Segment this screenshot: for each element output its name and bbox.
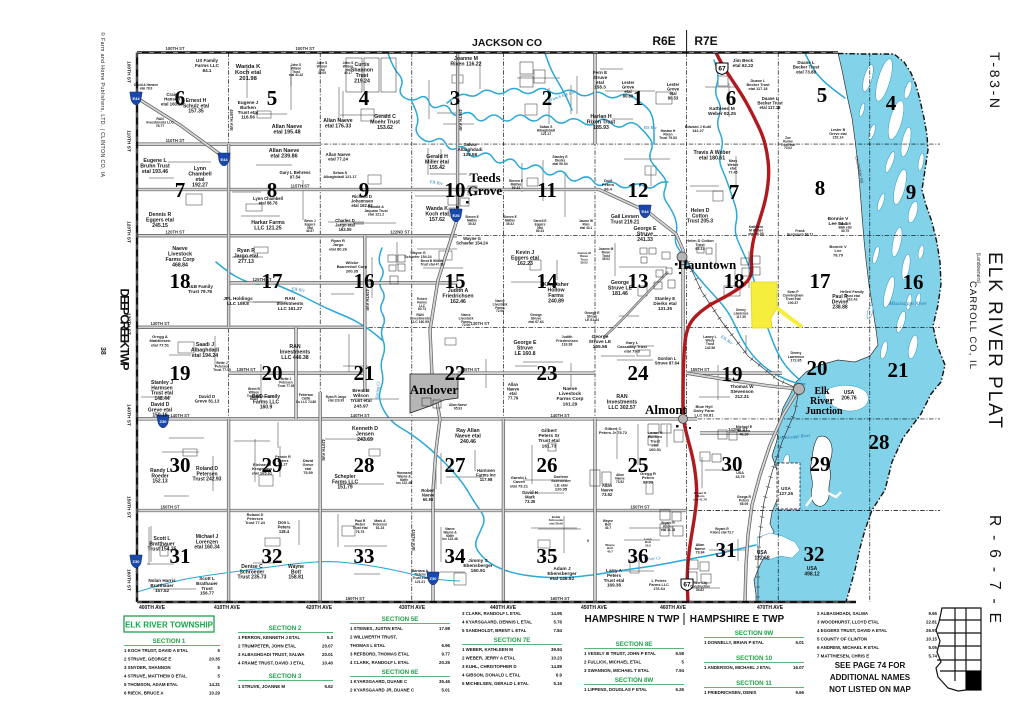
svg-text:130TH ST: 130TH ST bbox=[150, 321, 170, 326]
svg-text:9.77: 9.77 bbox=[441, 652, 450, 657]
svg-text:Z30: Z30 bbox=[430, 576, 438, 581]
svg-text:5.05: 5.05 bbox=[928, 645, 937, 650]
svg-text:22.81: 22.81 bbox=[926, 620, 938, 625]
svg-text:Brent B WilsonTrust etal 47.36: Brent B WilsonTrust etal 47.36 bbox=[420, 259, 443, 266]
svg-text:140TH ST: 140TH ST bbox=[550, 413, 570, 418]
svg-text:HAMPSHIRE E TWP: HAMPSHIRE E TWP bbox=[690, 614, 785, 625]
svg-text:R7E: R7E bbox=[694, 34, 717, 48]
svg-text:2: 2 bbox=[542, 86, 553, 110]
svg-text:420TH AVE: 420TH AVE bbox=[321, 439, 326, 461]
svg-text:SECTION 9W: SECTION 9W bbox=[735, 630, 774, 637]
svg-text:160TH ST: 160TH ST bbox=[126, 569, 132, 591]
svg-text:Randy LRoeder152.13: Randy LRoeder152.13 bbox=[150, 468, 170, 485]
svg-text:23: 23 bbox=[537, 361, 558, 385]
svg-text:450TH AVE: 450TH AVE bbox=[581, 605, 608, 611]
svg-text:4 CLARK, RANDOLF L ETAL: 4 CLARK, RANDOLF L ETAL bbox=[350, 660, 409, 665]
svg-text:125TH ST: 125TH ST bbox=[252, 277, 272, 282]
svg-text:36: 36 bbox=[628, 544, 649, 568]
svg-text:E44: E44 bbox=[220, 157, 228, 162]
svg-text:27: 27 bbox=[445, 453, 466, 477]
svg-text:410TH AVE: 410TH AVE bbox=[214, 605, 241, 611]
svg-text:5 MICHELSEN, GERALD L ETAL: 5 MICHELSEN, GERALD L ETAL bbox=[462, 681, 529, 686]
svg-text:5.01: 5.01 bbox=[441, 688, 450, 693]
svg-text:A&B FamilyTrust 79.78: A&B FamilyTrust 79.78 bbox=[187, 284, 213, 294]
svg-text:160TH ST: 160TH ST bbox=[550, 596, 570, 601]
svg-text:7.94: 7.94 bbox=[675, 668, 684, 673]
svg-text:140TH ST: 140TH ST bbox=[170, 413, 190, 418]
svg-text:4: 4 bbox=[359, 86, 370, 110]
svg-text:3 CLARK, RANDOLF L ETAL: 3 CLARK, RANDOLF L ETAL bbox=[462, 611, 521, 616]
svg-text:1 KYARSGAARD, DUANE C: 1 KYARSGAARD, DUANE C bbox=[350, 679, 408, 684]
svg-text:JPL HoldingsLLC 159.8: JPL HoldingsLLC 159.8 bbox=[223, 296, 253, 306]
svg-text:32: 32 bbox=[804, 542, 825, 566]
svg-text:Gregg AMatthiesenetal 77.51: Gregg AMatthiesenetal 77.51 bbox=[150, 334, 171, 347]
svg-text:1 DONNELLY, BRIAN P ETAL: 1 DONNELLY, BRIAN P ETAL bbox=[704, 640, 764, 645]
svg-text:John SWilsonetal39.09: John SWilsonetal39.09 bbox=[317, 61, 328, 75]
svg-text:Kathleen MWeber 92.25: Kathleen MWeber 92.25 bbox=[708, 106, 736, 117]
svg-text:THOMAS L ETAL: THOMAS L ETAL bbox=[350, 643, 386, 648]
svg-text:10.23: 10.23 bbox=[551, 656, 563, 661]
svg-text:28: 28 bbox=[869, 430, 890, 454]
svg-text:7.84: 7.84 bbox=[553, 628, 562, 633]
svg-text:11: 11 bbox=[537, 178, 557, 202]
svg-text:1 FRIEDRICHSEN, DENIS: 1 FRIEDRICHSEN, DENIS bbox=[704, 690, 757, 695]
svg-text:E44: E44 bbox=[132, 96, 140, 101]
svg-text:Roland DPetersenTrust 77.24: Roland DPetersenTrust 77.24 bbox=[245, 513, 266, 525]
svg-text:Almont: Almont bbox=[645, 402, 688, 417]
svg-text:Allan Naeveetal 195.48: Allan Naeveetal 195.48 bbox=[272, 124, 303, 136]
svg-text:2 WEBER, JERRY A ETAL: 2 WEBER, JERRY A ETAL bbox=[462, 656, 516, 661]
svg-text:130TH ST: 130TH ST bbox=[126, 313, 132, 335]
svg-text:100TH ST: 100TH ST bbox=[126, 61, 132, 83]
svg-text:Gordon LStruve 87.64: Gordon LStruve 87.64 bbox=[655, 356, 680, 366]
svg-text:31: 31 bbox=[716, 538, 737, 562]
svg-text:SECTION 8W: SECTION 8W bbox=[615, 677, 654, 684]
svg-text:Allan Naeveetal 239.86: Allan Naeveetal 239.86 bbox=[269, 148, 300, 160]
svg-text:Joanne MRixen 116.22: Joanne MRixen 116.22 bbox=[450, 56, 481, 68]
svg-text:20: 20 bbox=[807, 356, 828, 380]
svg-text:115TH ST: 115TH ST bbox=[291, 184, 310, 189]
svg-text:3 WOODHURST, LLOYD ETAL: 3 WOODHURST, LLOYD ETAL bbox=[817, 620, 879, 625]
svg-text:120TH ST: 120TH ST bbox=[126, 221, 132, 243]
svg-text:AllanNaeve73.52: AllanNaeve73.52 bbox=[615, 473, 625, 484]
svg-text:100TH ST: 100TH ST bbox=[295, 46, 315, 51]
svg-text:LeonBott50.5: LeonBott50.5 bbox=[644, 537, 651, 547]
svg-text:John SWilsonTrustetal 41.42: John SWilsonTrustetal 41.42 bbox=[289, 63, 304, 77]
svg-text:2 KYARSGAARD JR, DUANE C: 2 KYARSGAARD JR, DUANE C bbox=[350, 688, 415, 693]
svg-text:5: 5 bbox=[587, 539, 589, 543]
svg-text:135TH ST: 135TH ST bbox=[460, 367, 480, 372]
svg-text:460TH AVE: 460TH AVE bbox=[660, 605, 687, 611]
svg-text:9.58: 9.58 bbox=[675, 651, 684, 656]
svg-text:© Farm and Home Publishers, LT: © Farm and Home Publishers, LTD. | CLINT… bbox=[99, 32, 106, 178]
svg-text:LesterGroveetal80.53: LesterGroveetal80.53 bbox=[667, 82, 680, 101]
svg-text:1: 1 bbox=[633, 86, 644, 110]
svg-text:1 VESELY III TRUST, JOHN P ET: 1 VESELY III TRUST, JOHN P ETAL bbox=[584, 651, 656, 656]
svg-text:5.16: 5.16 bbox=[553, 681, 562, 686]
svg-text:33: 33 bbox=[354, 544, 375, 568]
svg-text:5.01: 5.01 bbox=[795, 640, 804, 645]
svg-text:6.26: 6.26 bbox=[675, 687, 684, 692]
svg-text:35: 35 bbox=[537, 544, 558, 568]
svg-text:1 STRUVE, JOANNE M: 1 STRUVE, JOANNE M bbox=[238, 684, 285, 689]
svg-text:155TH ST: 155TH ST bbox=[690, 367, 710, 372]
svg-text:19: 19 bbox=[722, 362, 743, 386]
svg-text:7: 7 bbox=[175, 178, 186, 202]
svg-text:32: 32 bbox=[262, 544, 283, 568]
svg-text:4 FRAME TRUST, DAVID J ETAL: 4 FRAME TRUST, DAVID J ETAL bbox=[238, 661, 305, 666]
svg-text:2 STRUVE, GEORGE E: 2 STRUVE, GEORGE E bbox=[124, 657, 171, 662]
svg-text:455TH AVE: 455TH AVE bbox=[458, 109, 463, 131]
svg-text:3 REFBORD, THOMAS ETAL: 3 REFBORD, THOMAS ETAL bbox=[350, 652, 410, 657]
svg-text:5 COUNTY OF CLINTON: 5 COUNTY OF CLINTON bbox=[817, 637, 867, 642]
svg-text:10.29: 10.29 bbox=[209, 691, 221, 696]
svg-text:4 STRUVE, MATTHEW D ETAL: 4 STRUVE, MATTHEW D ETAL bbox=[124, 674, 187, 679]
svg-text:430TH AVE: 430TH AVE bbox=[399, 605, 426, 611]
svg-text:10: 10 bbox=[445, 178, 466, 202]
svg-text:142ND ST: 142ND ST bbox=[728, 427, 748, 432]
svg-text:150TH ST: 150TH ST bbox=[160, 505, 180, 510]
svg-text:Don LPeters118.4: Don LPeters118.4 bbox=[278, 520, 291, 534]
svg-text:2 ALBAGHDADI, SALWA: 2 ALBAGHDADI, SALWA bbox=[817, 611, 869, 616]
svg-text:28: 28 bbox=[354, 453, 375, 477]
svg-text:1 ANDERSON, MICHAEL J ETAL: 1 ANDERSON, MICHAEL J ETAL bbox=[704, 665, 771, 670]
svg-text:Junction: Junction bbox=[805, 406, 843, 417]
svg-text:17: 17 bbox=[810, 269, 831, 293]
svg-text:16.07: 16.07 bbox=[793, 665, 805, 670]
svg-text:39.94: 39.94 bbox=[551, 647, 563, 652]
svg-text:4 GIBSON, DONALD L ETAL: 4 GIBSON, DONALD L ETAL bbox=[462, 673, 521, 678]
svg-text:110TH ST: 110TH ST bbox=[126, 130, 132, 152]
svg-text:E26: E26 bbox=[452, 213, 460, 218]
svg-text:6.96: 6.96 bbox=[441, 643, 450, 648]
svg-text:E44: E44 bbox=[641, 209, 649, 214]
svg-text:5 THOMSON, ADAM ETAL: 5 THOMSON, ADAM ETAL bbox=[124, 682, 178, 687]
svg-text:SECTION 8E: SECTION 8E bbox=[616, 641, 653, 648]
svg-text:Z30: Z30 bbox=[133, 559, 141, 564]
svg-text:8: 8 bbox=[815, 176, 826, 200]
svg-text:1 WEBER, KATHLEEN M: 1 WEBER, KATHLEEN M bbox=[462, 647, 513, 652]
svg-text:3 SWANNON, MICHAEL T ETAL: 3 SWANNON, MICHAEL T ETAL bbox=[584, 668, 650, 673]
svg-text:5.74: 5.74 bbox=[928, 654, 937, 659]
svg-text:5.76: 5.76 bbox=[553, 620, 562, 625]
svg-text:130TH ST: 130TH ST bbox=[470, 321, 490, 326]
svg-text:1 PERRON, KENNETH J ETAL: 1 PERRON, KENNETH J ETAL bbox=[238, 635, 300, 640]
svg-text:24: 24 bbox=[628, 361, 650, 385]
svg-text:Elk Riv: Elk Riv bbox=[642, 125, 656, 130]
svg-text:10.15: 10.15 bbox=[926, 637, 938, 642]
svg-text:430TH AVE: 430TH AVE bbox=[411, 529, 416, 551]
svg-text:KathleenM Weberetal 40.05: KathleenM Weberetal 40.05 bbox=[748, 225, 763, 236]
svg-text:Ryan R Jargoetal 119.39: Ryan R Jargoetal 119.39 bbox=[326, 395, 347, 402]
svg-text:5: 5 bbox=[267, 86, 278, 110]
svg-text:SECTION 5E: SECTION 5E bbox=[382, 616, 419, 623]
svg-text:122ND ST: 122ND ST bbox=[390, 230, 410, 235]
svg-text:110TH ST: 110TH ST bbox=[166, 138, 185, 143]
svg-text:SEE PAGE 74 FORADDITIONAL NAME: SEE PAGE 74 FORADDITIONAL NAMESNOT LISTE… bbox=[829, 661, 911, 694]
svg-text:Andover: Andover bbox=[410, 382, 459, 397]
svg-text:400TH AVE: 400TH AVE bbox=[139, 605, 166, 611]
svg-text:USA43.79: USA43.79 bbox=[736, 471, 745, 479]
svg-text:Mississippi River: Mississippi River bbox=[888, 301, 928, 307]
svg-text:450TH AVE: 450TH AVE bbox=[229, 109, 234, 131]
svg-text:Z30: Z30 bbox=[160, 419, 168, 424]
svg-text:6.9: 6.9 bbox=[556, 673, 563, 678]
svg-text:6 ANDREW, MICHAEL R ETAL: 6 ANDREW, MICHAEL R ETAL bbox=[817, 645, 879, 650]
svg-text:SECTION 2: SECTION 2 bbox=[269, 625, 302, 632]
svg-text:150TH ST: 150TH ST bbox=[126, 496, 132, 518]
svg-text:3 ALBAGHDADI TRUST, SALWA: 3 ALBAGHDADI TRUST, SALWA bbox=[238, 652, 305, 657]
svg-text:6 RIECK, BRUCE A: 6 RIECK, BRUCE A bbox=[124, 691, 164, 696]
svg-text:SECTION 11: SECTION 11 bbox=[736, 680, 772, 687]
svg-text:SECTION 6E: SECTION 6E bbox=[382, 669, 419, 676]
svg-text:Harkar FarmsLLC 121.25: Harkar FarmsLLC 121.25 bbox=[251, 220, 285, 232]
svg-text:35.46: 35.46 bbox=[439, 679, 451, 684]
svg-text:14.31: 14.31 bbox=[209, 682, 221, 687]
svg-text:12: 12 bbox=[628, 178, 649, 202]
svg-text:AllanNaeveetal77.79: AllanNaeveetal77.79 bbox=[507, 382, 520, 401]
svg-text:1 LIPPENS, DOUGLAS F ETAL: 1 LIPPENS, DOUGLAS F ETAL bbox=[584, 687, 647, 692]
svg-text:14.89: 14.89 bbox=[551, 664, 563, 669]
svg-text:140TH ST: 140TH ST bbox=[126, 404, 132, 426]
svg-text:5.3: 5.3 bbox=[327, 635, 334, 640]
svg-text:HanmsenWayne &KaffeInc 122.48: HanmsenWayne &KaffeInc 122.48 bbox=[396, 471, 411, 485]
svg-text:SECTION 7E: SECTION 7E bbox=[494, 637, 531, 644]
svg-text:Blue HyllDairy FarmLLC 93.81: Blue HyllDairy FarmLLC 93.81 bbox=[694, 404, 715, 417]
svg-text:7 MATTHIESEN, CHRIS E: 7 MATTHIESEN, CHRIS E bbox=[817, 654, 869, 659]
svg-text:SECTION 3: SECTION 3 bbox=[269, 673, 302, 680]
svg-text:Grove: Grove bbox=[468, 183, 503, 198]
svg-text:21: 21 bbox=[888, 358, 909, 382]
svg-text:AllanNaeve73.52: AllanNaeve73.52 bbox=[601, 483, 614, 497]
svg-text:1 STEINES, JUSTIN ETAL: 1 STEINES, JUSTIN ETAL bbox=[350, 626, 403, 631]
svg-text:HAMPSHIRE N TWP: HAMPSHIRE N TWP bbox=[585, 614, 680, 625]
svg-text:5.62: 5.62 bbox=[324, 684, 333, 689]
svg-text:2 TRUMPETER, JOHN ETAL: 2 TRUMPETER, JOHN ETAL bbox=[238, 644, 296, 649]
svg-text:120TH ST: 120TH ST bbox=[165, 230, 185, 235]
svg-text:14.95: 14.95 bbox=[551, 611, 563, 616]
svg-text:2 WILLWERTH TRUST,: 2 WILLWERTH TRUST, bbox=[350, 635, 397, 640]
svg-text:LesterGroveetal80.89: LesterGroveetal80.89 bbox=[622, 80, 635, 99]
svg-text:Fern EStruveetal158.3: Fern EStruveetal158.3 bbox=[593, 70, 608, 90]
svg-text:ELK RIVER TOWNSHIP: ELK RIVER TOWNSHIP bbox=[125, 621, 214, 630]
svg-text:Richard JKrogmannetal 165.61: Richard JKrogmannetal 165.61 bbox=[252, 462, 273, 475]
svg-text:RobertNaeve60.98: RobertNaeve60.98 bbox=[421, 488, 435, 502]
svg-text:4 EGGERS TRUST, DAVID A ETAL: 4 EGGERS TRUST, DAVID A ETAL bbox=[817, 628, 887, 633]
svg-text:38: 38 bbox=[99, 347, 106, 355]
svg-text:29: 29 bbox=[810, 452, 831, 476]
svg-text:20.07: 20.07 bbox=[322, 644, 334, 649]
svg-text:(Landowners): (Landowners) bbox=[975, 253, 981, 284]
svg-text:10.40: 10.40 bbox=[322, 661, 334, 666]
svg-text:470TH AVE: 470TH AVE bbox=[757, 605, 784, 611]
svg-text:67: 67 bbox=[718, 66, 726, 73]
svg-text:30: 30 bbox=[170, 453, 191, 477]
svg-text:16: 16 bbox=[903, 270, 924, 294]
svg-text:3 SNYDER, SHANNON: 3 SNYDER, SHANNON bbox=[124, 665, 171, 670]
svg-text:Jim Becketal 62.22: Jim Becketal 62.22 bbox=[733, 58, 754, 68]
svg-text:JACKSON CO: JACKSON CO bbox=[472, 37, 542, 49]
svg-text:9.66: 9.66 bbox=[795, 690, 804, 695]
svg-text:Travis A Weberetal 180.61: Travis A Weberetal 180.61 bbox=[694, 150, 731, 162]
svg-text:9: 9 bbox=[906, 180, 917, 204]
svg-text:3 KUHL, CHRISTOPHER D: 3 KUHL, CHRISTOPHER D bbox=[462, 664, 517, 669]
svg-text:AllanNaeve79.84: AllanNaeve79.84 bbox=[695, 543, 706, 555]
svg-text:Allan Naeveetal 77.24: Allan Naeveetal 77.24 bbox=[326, 152, 351, 162]
svg-text:20.01: 20.01 bbox=[322, 652, 334, 657]
svg-text:420TH AVE: 420TH AVE bbox=[306, 605, 333, 611]
svg-text:17.98: 17.98 bbox=[439, 626, 451, 631]
svg-text:Gail LevsenTrust 219.21: Gail LevsenTrust 219.21 bbox=[611, 214, 640, 225]
svg-text:3: 3 bbox=[450, 86, 461, 110]
svg-text:Eugene LBruhn Trustetal 193.46: Eugene LBruhn Trustetal 193.46 bbox=[140, 158, 170, 175]
svg-text:4 KYARSGAARD, DENNIS L ETAL: 4 KYARSGAARD, DENNIS L ETAL bbox=[462, 620, 532, 625]
svg-text:Hauntown: Hauntown bbox=[678, 257, 737, 272]
svg-text:2 FULLICK, MICHAEL ETAL: 2 FULLICK, MICHAEL ETAL bbox=[584, 660, 641, 665]
svg-text:160TH ST: 160TH ST bbox=[345, 596, 365, 601]
svg-text:Denise CSchroederTrust 235.73: Denise CSchroederTrust 235.73 bbox=[238, 564, 267, 581]
svg-text:CARROLL CO, IL: CARROLL CO, IL bbox=[967, 281, 978, 369]
svg-text:Roland DPetersenTrust 242.93: Roland DPetersenTrust 242.93 bbox=[193, 466, 222, 483]
svg-text:9.65: 9.65 bbox=[928, 611, 937, 616]
svg-text:21: 21 bbox=[354, 361, 375, 385]
svg-text:John SWilsonetal40.17: John SWilsonetal40.17 bbox=[343, 61, 354, 75]
svg-text:435TH AVE: 435TH AVE bbox=[365, 289, 370, 311]
svg-text:Michael JLorenzenetal 160.34: Michael JLorenzenetal 160.34 bbox=[194, 534, 220, 551]
svg-text:20.35: 20.35 bbox=[209, 657, 221, 662]
svg-text:20.25: 20.25 bbox=[439, 660, 451, 665]
svg-text:1 KOCH TRUST, DAVID A ETAL: 1 KOCH TRUST, DAVID A ETAL bbox=[124, 648, 188, 653]
svg-text:7: 7 bbox=[729, 180, 740, 204]
svg-text:150TH ST: 150TH ST bbox=[630, 505, 650, 510]
svg-text:Allan Naeveetal 176.33: Allan Naeveetal 176.33 bbox=[323, 118, 353, 130]
svg-text:135TH ST: 135TH ST bbox=[236, 367, 256, 372]
svg-text:100TH ST: 100TH ST bbox=[165, 46, 185, 51]
svg-text:SECTION 10: SECTION 10 bbox=[736, 655, 773, 662]
svg-text:18: 18 bbox=[724, 269, 745, 293]
svg-text:SECTION 1: SECTION 1 bbox=[153, 638, 186, 645]
svg-text:5 SANDHOLDT, BRENT L ETAL: 5 SANDHOLDT, BRENT L ETAL bbox=[462, 628, 527, 633]
svg-text:R6E: R6E bbox=[652, 34, 675, 48]
svg-text:5: 5 bbox=[817, 83, 828, 107]
svg-text:4: 4 bbox=[886, 91, 897, 115]
svg-text:140TH ST: 140TH ST bbox=[350, 413, 370, 418]
